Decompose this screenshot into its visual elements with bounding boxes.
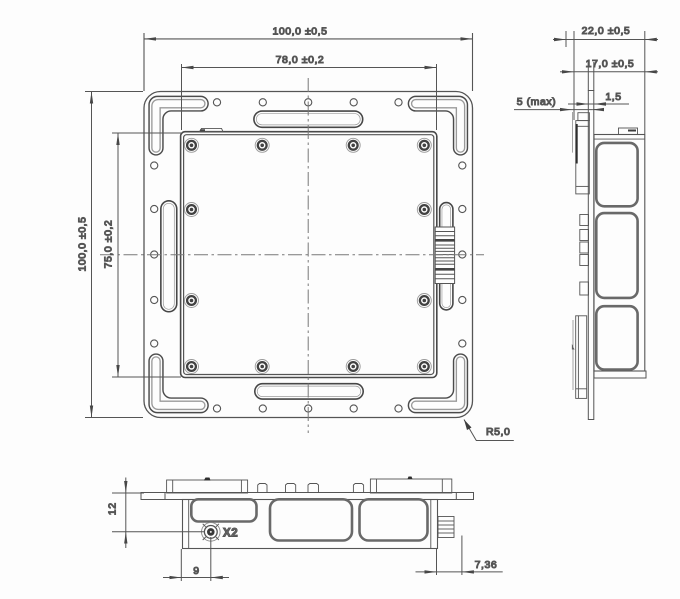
svg-text:17,0 ±0,5: 17,0 ±0,5 bbox=[586, 58, 635, 70]
svg-text:9: 9 bbox=[193, 565, 199, 577]
svg-text:5 (max): 5 (max) bbox=[517, 96, 556, 108]
svg-text:X2: X2 bbox=[223, 527, 238, 539]
svg-text:100,0 ±0,5: 100,0 ±0,5 bbox=[272, 26, 327, 38]
svg-text:22,0 ±0,5: 22,0 ±0,5 bbox=[582, 25, 631, 37]
svg-text:1,5: 1,5 bbox=[605, 91, 621, 103]
svg-text:7,36: 7,36 bbox=[475, 559, 498, 571]
svg-text:75,0 ±0,2: 75,0 ±0,2 bbox=[103, 220, 115, 269]
svg-text:78,0 ±0,2: 78,0 ±0,2 bbox=[276, 54, 325, 66]
svg-text:100,0 ±0,5: 100,0 ±0,5 bbox=[77, 216, 89, 271]
svg-text:12: 12 bbox=[107, 502, 119, 515]
svg-text:R5,0: R5,0 bbox=[486, 426, 510, 438]
